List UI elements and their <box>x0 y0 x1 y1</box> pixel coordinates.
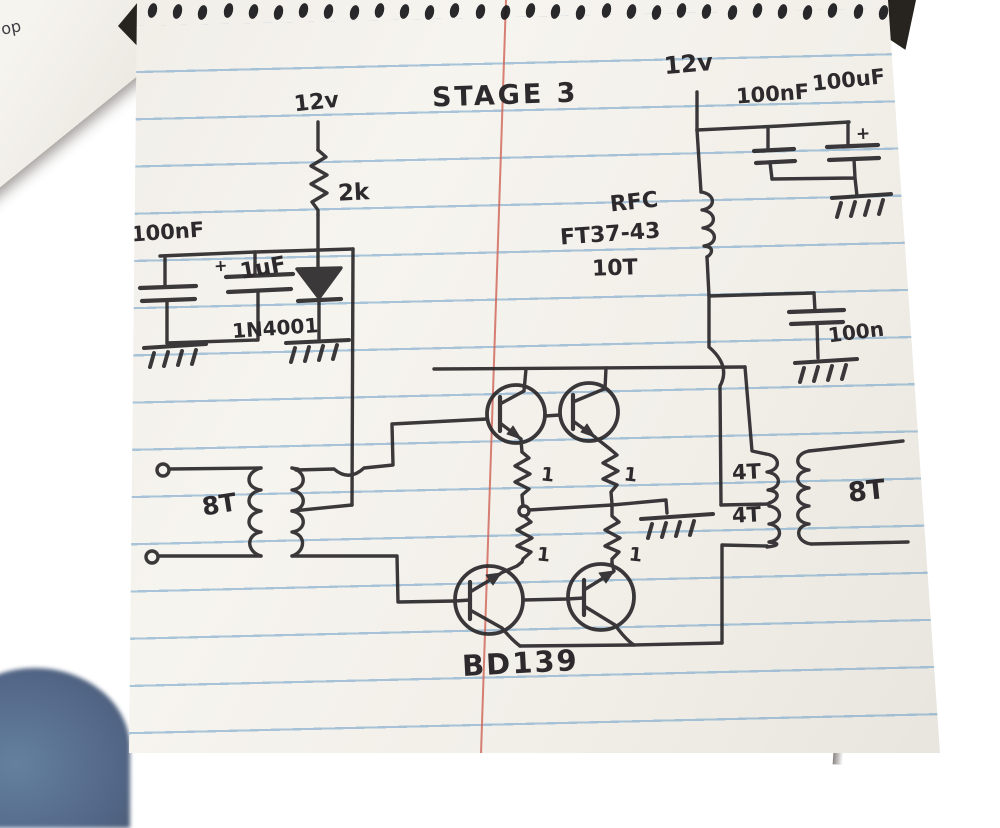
emitter-resistor-2-label: 1 <box>623 463 638 486</box>
emitter-resistor-4 <box>605 504 620 563</box>
rfc-choke-branch <box>697 92 849 505</box>
upper-collector-rail <box>434 367 745 369</box>
notebook-page: STAGE 3 12v 12v 2k 100nF + 1uF 1N4001 RF… <box>0 0 1000 753</box>
transistor-q4 <box>523 563 634 645</box>
transistor-q2 <box>560 368 618 449</box>
ground-symbols <box>144 194 891 538</box>
input-terminal-top <box>157 464 169 476</box>
lower-base-wire <box>292 556 455 602</box>
t2-primary-top-label: 4T <box>731 459 761 484</box>
t1-primary-coil <box>249 468 261 556</box>
decoupling-cap-small-label: 100nF <box>735 79 810 108</box>
t2-primary-top-coil <box>766 454 778 503</box>
t2-secondary-coil <box>798 451 811 544</box>
t1-secondary-coil <box>292 468 303 556</box>
capacitor-100nF-topright <box>754 127 795 179</box>
capacitor-100nF-left <box>140 256 196 343</box>
t2-primary-bottom-label: 4T <box>731 502 761 527</box>
upper-base-wire <box>296 419 487 475</box>
hand-drawn-schematic <box>0 0 1000 753</box>
emitter-resistor-1 <box>515 452 530 506</box>
emitter-resistor-4-label: 1 <box>628 543 643 566</box>
transistor-q1 <box>487 369 545 452</box>
choke-turns-label: 10T <box>592 255 638 282</box>
transistor-q3 <box>455 562 523 646</box>
rfc-coil <box>701 192 714 257</box>
bias-resistor-label: 2k <box>337 179 370 207</box>
photo-of-desk: { "scene": { "desk_surface": "wood desk"… <box>0 0 1000 753</box>
output-transformer <box>766 441 908 547</box>
schematic-title: STAGE 3 <box>432 77 579 113</box>
loose-paper-text: op <box>0 16 23 38</box>
supply-label-right: 12v <box>663 48 714 80</box>
input-transformer-label: 8T <box>200 487 239 521</box>
center-node-wire <box>529 500 667 513</box>
emitter-resistor-3 <box>517 516 532 562</box>
transistor-type-label: BD139 <box>461 643 579 683</box>
input-terminal-bottom <box>146 551 158 563</box>
emitter-resistor-2 <box>603 449 618 504</box>
electrolytic-plus-right: + <box>855 124 870 145</box>
denim-fabric-corner <box>0 668 130 828</box>
resistor-2k <box>311 150 327 215</box>
emitter-resistor-1-label: 1 <box>540 463 555 486</box>
t2-secondary-label: 8T <box>846 474 886 509</box>
emitter-resistor-3-label: 1 <box>536 543 551 566</box>
electrolytic-plus-left: + <box>213 256 228 276</box>
choke-name-label: RFC <box>609 188 659 218</box>
supply-label-left: 12v <box>293 88 340 118</box>
center-tap-feed <box>709 296 724 505</box>
left-bypass-cap-label: 100nF <box>130 217 205 246</box>
t2-primary-bottom-coil <box>767 506 780 547</box>
bias-network <box>140 122 353 511</box>
